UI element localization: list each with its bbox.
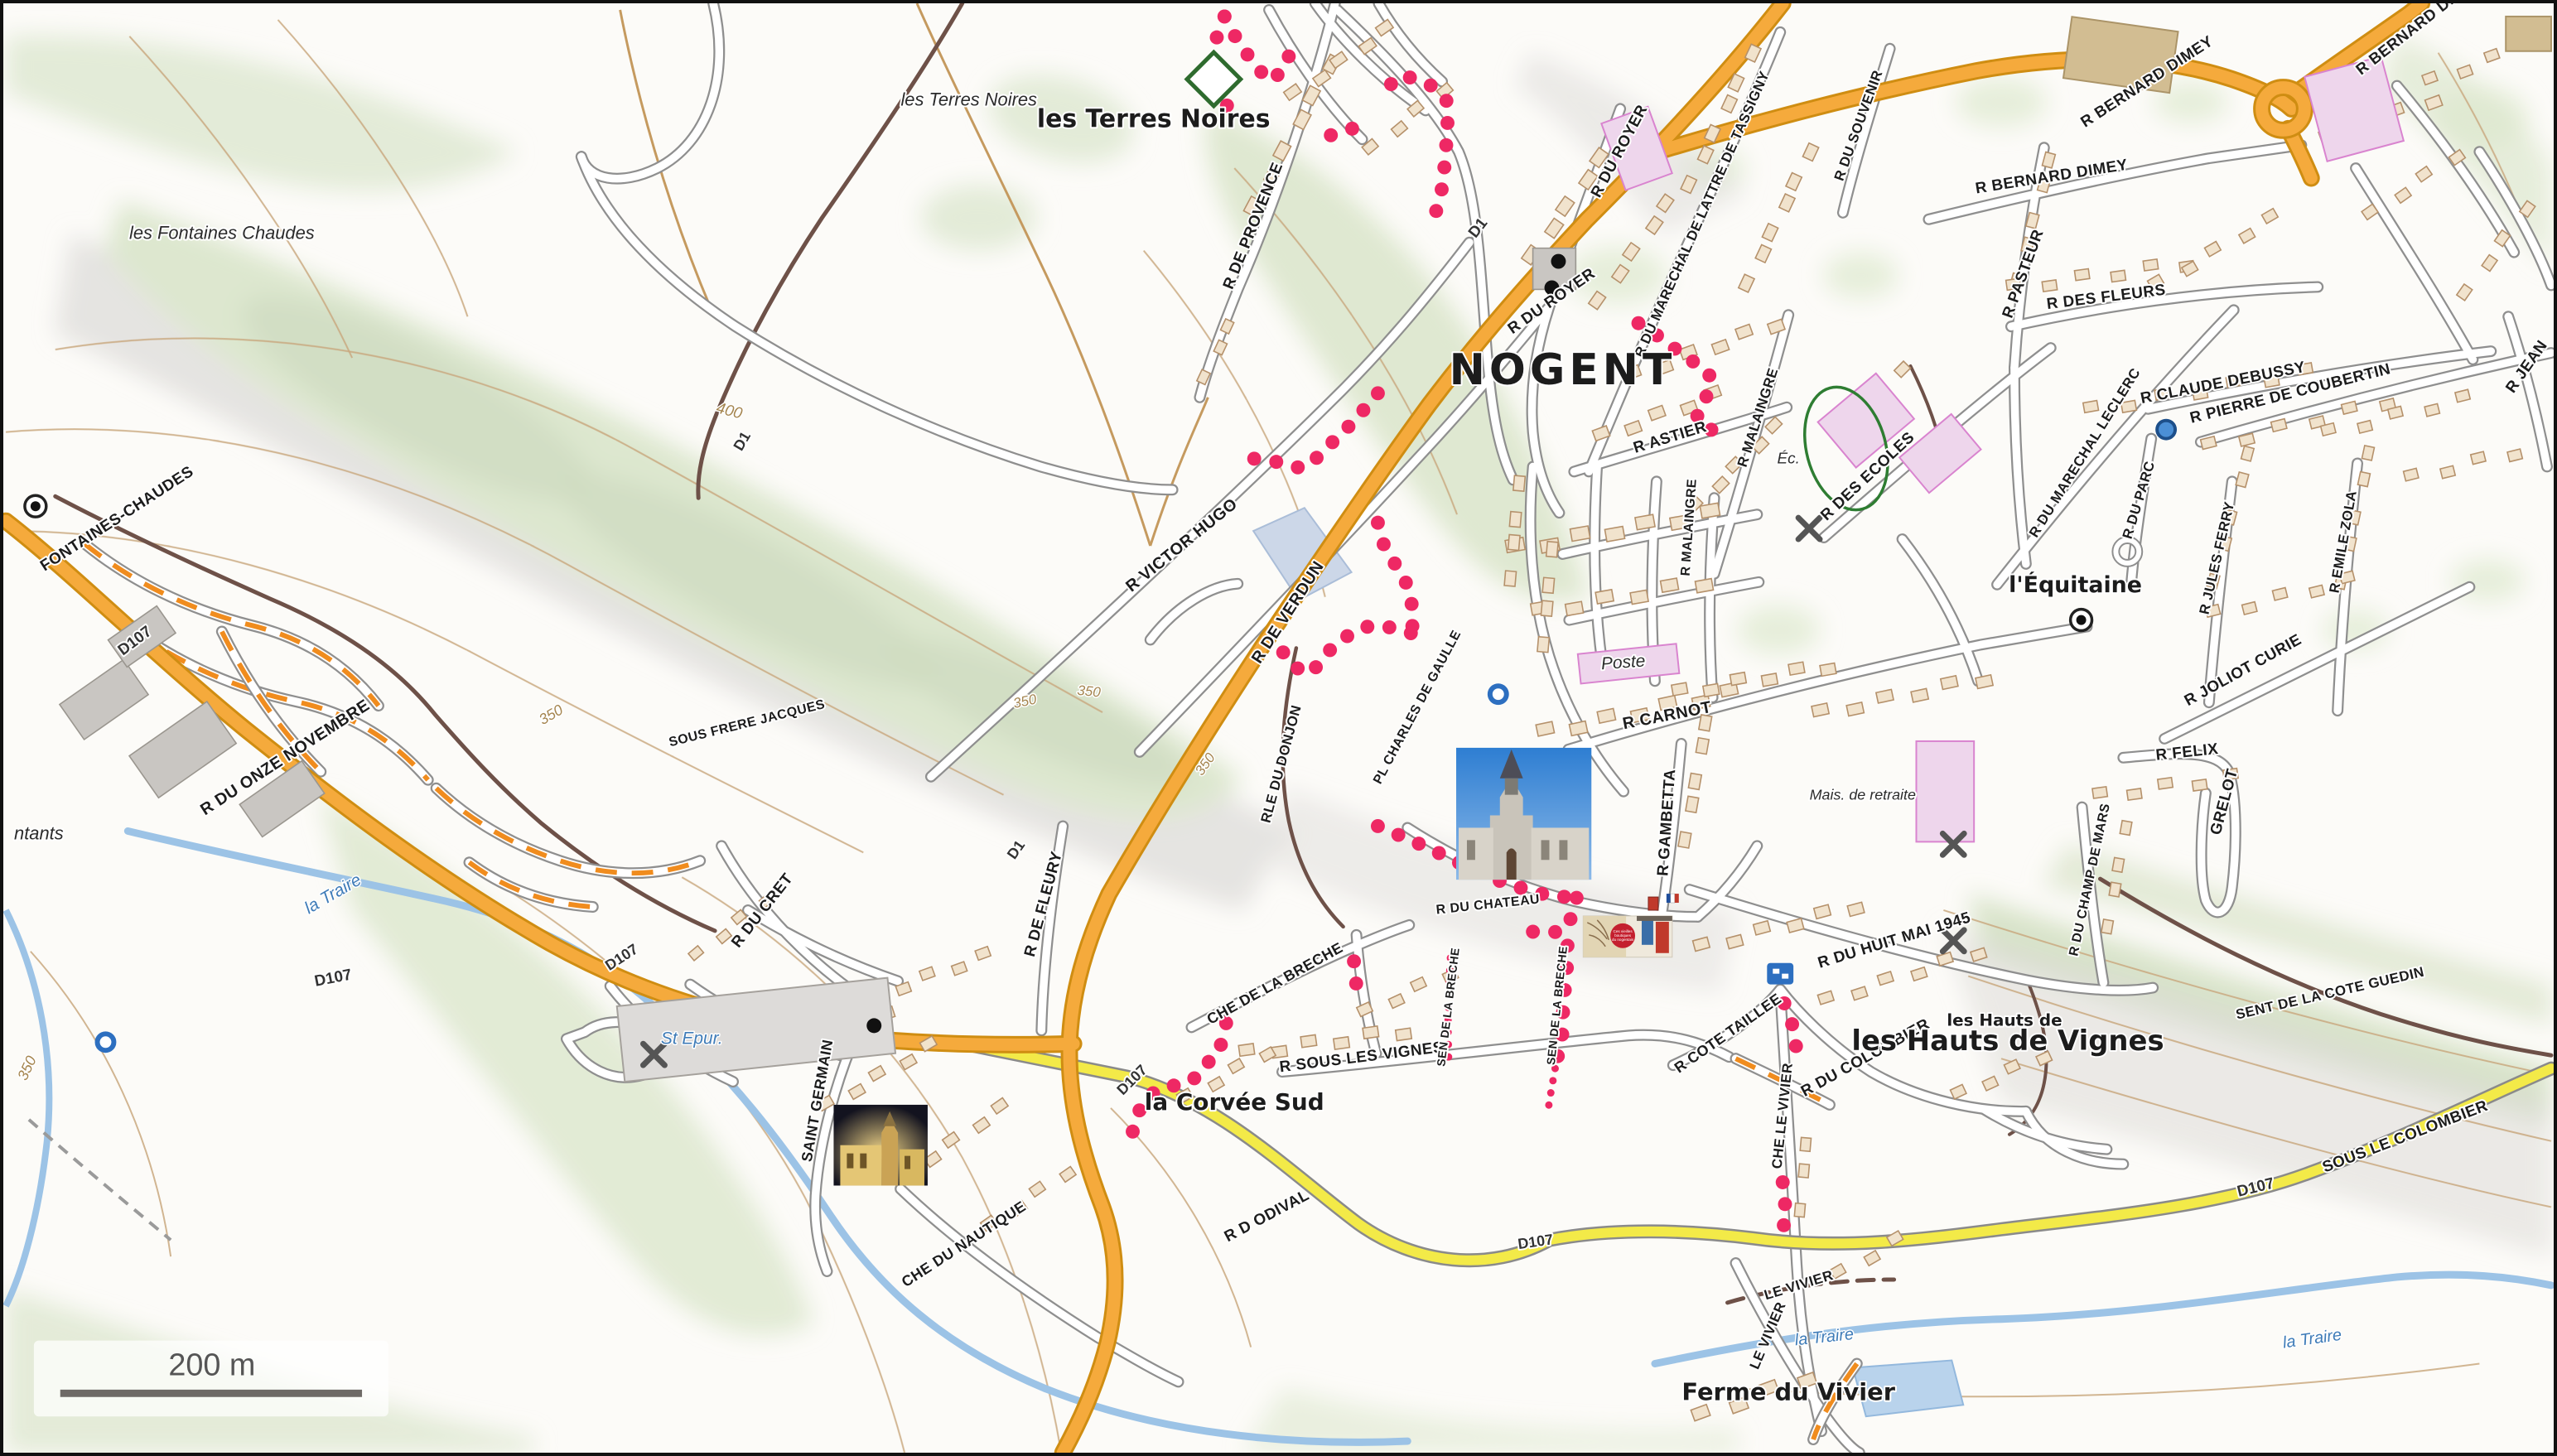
map-label: les Terres Noires — [900, 89, 1037, 109]
flag-icon — [1667, 894, 1679, 903]
spring-marker — [1490, 686, 1507, 702]
map-label: Mais. de retraite — [1810, 787, 1916, 803]
old-shops-photo-thumbnail[interactable]: Ces vieillesboutiquesdu nogentais — [1583, 916, 1672, 957]
map-label: St Epur. — [661, 1029, 723, 1048]
map-viewport[interactable]: Ces vieillesboutiquesdu nogentais R DE P… — [0, 0, 2557, 1456]
scale-bar-label: 200 m — [168, 1348, 255, 1382]
blue-poi-marker — [2157, 421, 2175, 439]
map-label: les Hauts de Vignes — [1851, 1025, 2164, 1057]
topo-map-canvas[interactable]: Ces vieillesboutiquesdu nogentais R DE P… — [3, 3, 2554, 1453]
poi-dot-marker — [866, 1018, 881, 1033]
map-label: Ferme du Vivier — [1681, 1377, 1895, 1405]
map-label: l'Équitaine — [2009, 571, 2142, 598]
map-label: Poste — [1600, 652, 1646, 674]
map-label: 350 — [1077, 682, 1102, 701]
church-photo-thumbnail[interactable] — [1456, 748, 1591, 880]
map-label: Éc. — [1778, 450, 1800, 467]
night-church-photo-thumbnail[interactable] — [833, 1105, 927, 1186]
spring-marker — [98, 1034, 114, 1050]
map-label: NOGENT — [1450, 345, 1677, 395]
info-sign-icon — [1767, 963, 1793, 985]
map-label: les Fontaines Chaudes — [129, 223, 315, 243]
map-label: la Corvée Sud — [1145, 1088, 1324, 1116]
red-sign-icon — [1648, 897, 1658, 910]
poi-dot-marker — [1551, 254, 1566, 269]
scale-bar: 200 m — [34, 1341, 388, 1417]
map-label: ntants — [14, 822, 64, 843]
terrain-shading — [6, 3, 2551, 1453]
boutiques-caption: Ces vieillesboutiquesdu nogentais — [1612, 929, 1634, 942]
map-label: les Terres Noires — [1037, 104, 1271, 133]
